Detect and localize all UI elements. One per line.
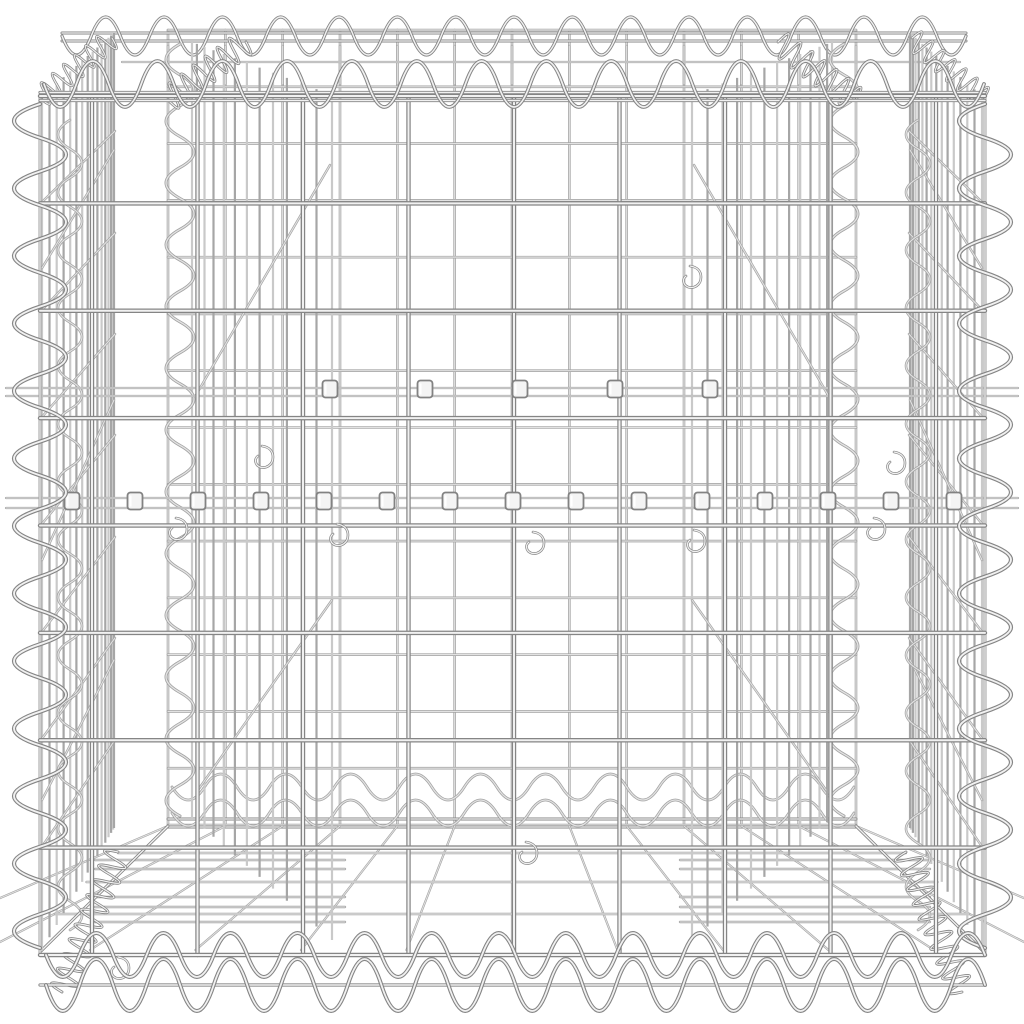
gabion-basket-product-photo <box>0 0 1024 1024</box>
hook-wire-ends <box>112 266 905 979</box>
right-partition-spiral <box>830 44 858 816</box>
gabion-basket-illustration <box>0 0 1024 1024</box>
left-partition-spiral <box>166 44 194 816</box>
right-partition-mesh <box>692 42 832 940</box>
left-partition-mesh <box>192 42 332 940</box>
